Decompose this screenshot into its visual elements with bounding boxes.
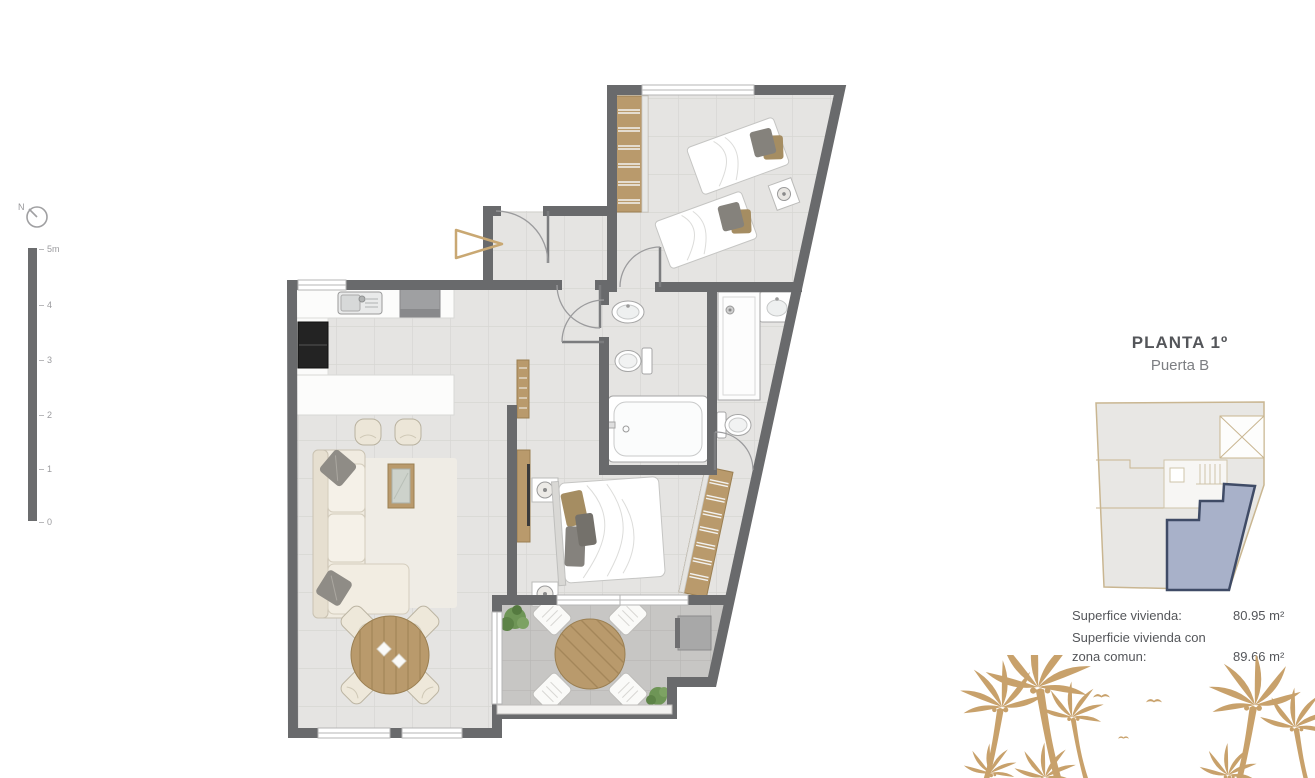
washbasin: [612, 301, 644, 323]
bathtub: [608, 396, 708, 462]
tv-console: [517, 360, 530, 542]
cooktop: [400, 289, 440, 317]
scale-bar: 5m 4 3 2 1 0: [28, 248, 88, 521]
floor-plan: [260, 60, 860, 765]
palm-bush-icon: [1014, 742, 1077, 778]
scale-tick-label: 3: [47, 355, 52, 365]
scale-tick-label: 5m: [47, 244, 60, 254]
glass-door: [492, 612, 502, 704]
oven-column: [298, 322, 328, 368]
double-bed: [552, 474, 666, 585]
north-indicator: N: [12, 196, 58, 241]
shower: [718, 292, 760, 400]
scale-tick-label: 1: [47, 464, 52, 474]
terrace-railing: [497, 705, 672, 714]
kitchen-island: [292, 375, 454, 415]
compass-icon: N: [12, 196, 58, 236]
north-label: N: [18, 202, 25, 212]
bar-stool: [355, 419, 381, 445]
wardrobe: [616, 96, 648, 212]
scale-tick-label: 4: [47, 300, 52, 310]
toilet: [615, 348, 652, 374]
plan-subtitle: Puerta B: [1090, 357, 1270, 374]
info-row: Superfice vivienda: 80.95 m²: [1072, 607, 1302, 626]
window: [402, 728, 462, 738]
plan-title: PLANTA 1º: [1090, 333, 1270, 353]
dining-area: [338, 603, 442, 707]
bird-icon: [1093, 694, 1110, 697]
bird-icon: [1118, 736, 1129, 738]
window: [318, 728, 390, 738]
building-keyplan: [1092, 398, 1270, 601]
ac-unit: [675, 616, 711, 650]
keyplan-crossed-area: [1220, 416, 1264, 458]
tv-icon: [527, 464, 530, 526]
bird-icon: [1146, 699, 1162, 702]
sliding-door: [557, 595, 688, 605]
scale-tick-label: 0: [47, 517, 52, 527]
kitchen-sink: [338, 292, 382, 314]
window: [642, 85, 754, 95]
coffee-table: [388, 464, 414, 508]
title-block: PLANTA 1º Puerta B: [1090, 333, 1270, 374]
scale-bar-track: [28, 248, 37, 521]
bar-stool: [395, 419, 421, 445]
info-label: Superfice vivienda:: [1072, 607, 1233, 626]
window: [298, 280, 346, 290]
info-value: 80.95 m²: [1233, 607, 1284, 626]
palm-tree-icon: [1207, 655, 1301, 778]
page: N 5m 4 3 2 1 0: [0, 0, 1315, 778]
palm-decoration: [950, 655, 1315, 778]
scale-tick-label: 2: [47, 410, 52, 420]
